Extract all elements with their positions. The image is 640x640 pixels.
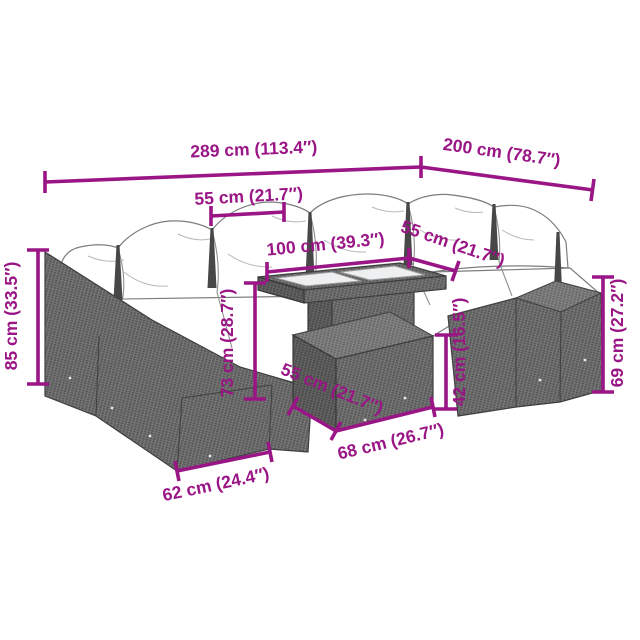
weave-highlight bbox=[364, 419, 367, 422]
dim-set-side-depth-label: 200 cm (78.7″) bbox=[442, 134, 562, 170]
dim-footstool-height-label: 42 cm (16.5″) bbox=[449, 298, 469, 407]
dim-line bbox=[421, 167, 593, 190]
dim-table-height-label: 73 cm (28.7″) bbox=[217, 289, 237, 398]
dim-sofa-back-height: 85 cm (33.5″) bbox=[1, 250, 49, 384]
dim-tick bbox=[591, 179, 594, 201]
dim-set-side-depth: 200 cm (78.7″) bbox=[421, 134, 594, 201]
weave-highlight bbox=[111, 407, 114, 410]
weave-highlight bbox=[539, 379, 542, 382]
dim-sofa-back-height-label: 85 cm (33.5″) bbox=[1, 262, 21, 371]
weave-highlight bbox=[69, 377, 72, 380]
furniture-dimension-diagram: 289 cm (113.4″) 200 cm (78.7″) 55 cm (21… bbox=[0, 0, 640, 640]
dim-armrest-height-label: 69 cm (27.2″) bbox=[607, 279, 627, 388]
weave-highlight bbox=[149, 435, 152, 438]
weave-highlight bbox=[404, 397, 407, 400]
weave-highlight bbox=[209, 455, 212, 458]
dim-set-total-width-label: 289 cm (113.4″) bbox=[190, 137, 318, 162]
dim-set-total-width: 289 cm (113.4″) bbox=[45, 137, 421, 193]
weave-highlight bbox=[584, 359, 587, 362]
dim-line bbox=[45, 167, 421, 182]
dim-tick bbox=[431, 397, 435, 417]
diagram-canvas: 289 cm (113.4″) 200 cm (78.7″) 55 cm (21… bbox=[0, 0, 640, 640]
